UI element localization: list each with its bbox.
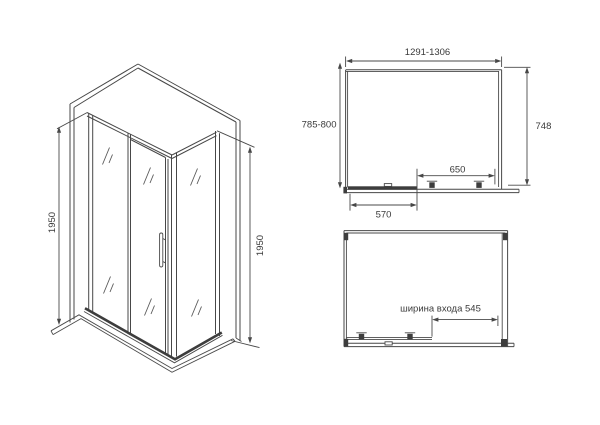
arrowhead-left <box>350 203 356 207</box>
roller-icon <box>476 182 481 188</box>
front-dimension-fixed-panel: 570 <box>350 194 417 221</box>
arrowhead-right <box>411 203 417 207</box>
front-frame <box>343 70 519 194</box>
roller-icon <box>359 334 364 339</box>
arrowhead-down <box>525 179 529 185</box>
door-handle-icon <box>160 233 166 267</box>
door-bottom-rail <box>348 186 417 189</box>
roller-icon <box>429 182 434 188</box>
plan-frame <box>344 231 514 347</box>
rail-clamp <box>384 184 391 187</box>
arrowhead-down <box>338 182 342 188</box>
front-dimension-glass-height: 748 <box>504 67 551 185</box>
iso-dimension-right: 1950 <box>217 131 266 348</box>
plan-rollers <box>356 333 415 339</box>
front-width-label: 1291-1306 <box>405 47 450 58</box>
technical-drawing-canvas: 1950 1950 <box>0 0 600 425</box>
arrowhead-right <box>489 174 495 178</box>
glass-shine-marks <box>103 148 202 317</box>
arrowhead-down <box>57 319 61 325</box>
front-dimension-width: 1291-1306 <box>346 47 502 67</box>
arrowhead-left <box>346 59 352 63</box>
front-view: 1291-1306 785-800 748 650 <box>302 47 552 221</box>
wall-profile-corner <box>501 339 507 346</box>
plan-dimension-entrance: ширина входа 545 <box>400 304 498 337</box>
front-door-width-label: 650 <box>450 165 466 176</box>
front-fixed-width-label: 570 <box>376 210 392 221</box>
rail-clamp <box>385 342 392 345</box>
plan-view: ширина входа 545 <box>344 231 514 347</box>
arrowhead-right <box>495 59 501 63</box>
arrowhead-down <box>248 337 252 343</box>
wall-profile-corner <box>344 339 348 347</box>
front-glass-height-label: 748 <box>536 121 552 132</box>
roller-icon <box>407 334 412 339</box>
arrowhead-up <box>525 67 529 73</box>
base-tray <box>51 308 235 372</box>
drawing-svg: 1950 1950 <box>0 0 600 425</box>
wall-profile-corner <box>344 233 348 240</box>
arrowhead-up <box>57 127 61 133</box>
front-dimension-door: 650 <box>417 165 495 211</box>
entrance-width-label: ширина входа 545 <box>400 304 481 315</box>
arrowhead-right <box>492 318 498 322</box>
front-height-label: 785-800 <box>302 120 337 131</box>
arrowhead-left <box>432 318 438 322</box>
iso-dimension-left: 1950 <box>47 113 87 325</box>
wall-profile-corner <box>503 233 507 240</box>
arrowhead-left <box>417 174 423 178</box>
sliding-door-top-edge <box>131 140 166 158</box>
wall-profile-foot <box>343 187 347 194</box>
front-dimension-height: 785-800 <box>302 63 342 189</box>
iso-height-left-label: 1950 <box>47 212 58 233</box>
iso-height-right-label: 1950 <box>255 235 266 256</box>
arrowhead-up <box>338 63 342 69</box>
isometric-view: 1950 1950 <box>47 64 266 372</box>
arrowhead-up <box>248 147 252 153</box>
door-rollers <box>427 181 484 188</box>
